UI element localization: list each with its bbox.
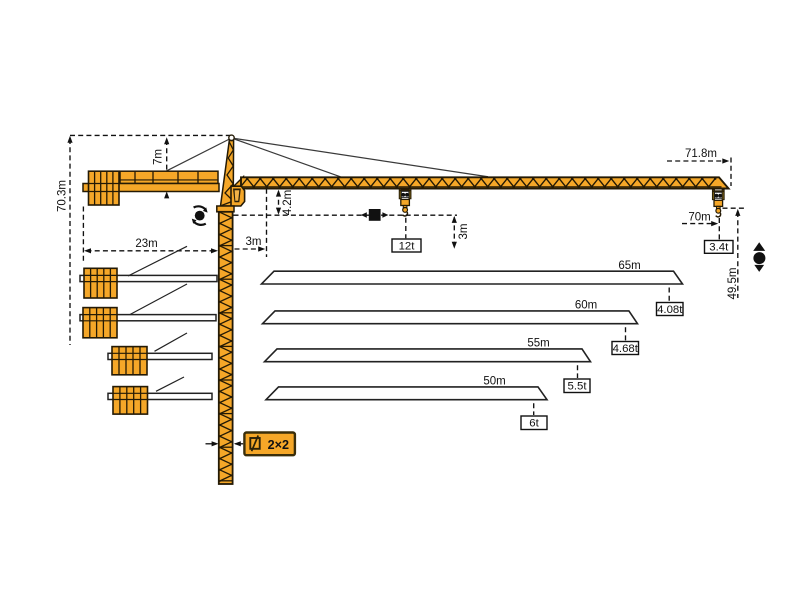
svg-text:3m: 3m <box>246 236 262 248</box>
svg-text:4.68t: 4.68t <box>613 343 639 355</box>
svg-text:71.8m: 71.8m <box>685 148 717 160</box>
svg-text:70m: 70m <box>688 211 710 223</box>
svg-text:65m: 65m <box>618 260 640 272</box>
svg-text:4.08t: 4.08t <box>657 304 683 316</box>
svg-text:7m: 7m <box>153 149 165 165</box>
svg-text:12t: 12t <box>399 240 416 252</box>
svg-text:4.2m: 4.2m <box>282 190 294 216</box>
svg-text:55m: 55m <box>527 338 549 350</box>
svg-text:70.3m: 70.3m <box>57 180 69 212</box>
svg-text:2×2: 2×2 <box>268 438 289 452</box>
svg-text:49.5m: 49.5m <box>727 268 739 300</box>
svg-text:6t: 6t <box>529 418 539 430</box>
svg-text:3.4t: 3.4t <box>709 242 729 254</box>
svg-text:5.5t: 5.5t <box>568 381 588 393</box>
svg-text:3m: 3m <box>458 224 470 240</box>
svg-text:50m: 50m <box>483 376 505 388</box>
svg-text:23m: 23m <box>135 238 157 250</box>
svg-text:60m: 60m <box>575 300 597 312</box>
